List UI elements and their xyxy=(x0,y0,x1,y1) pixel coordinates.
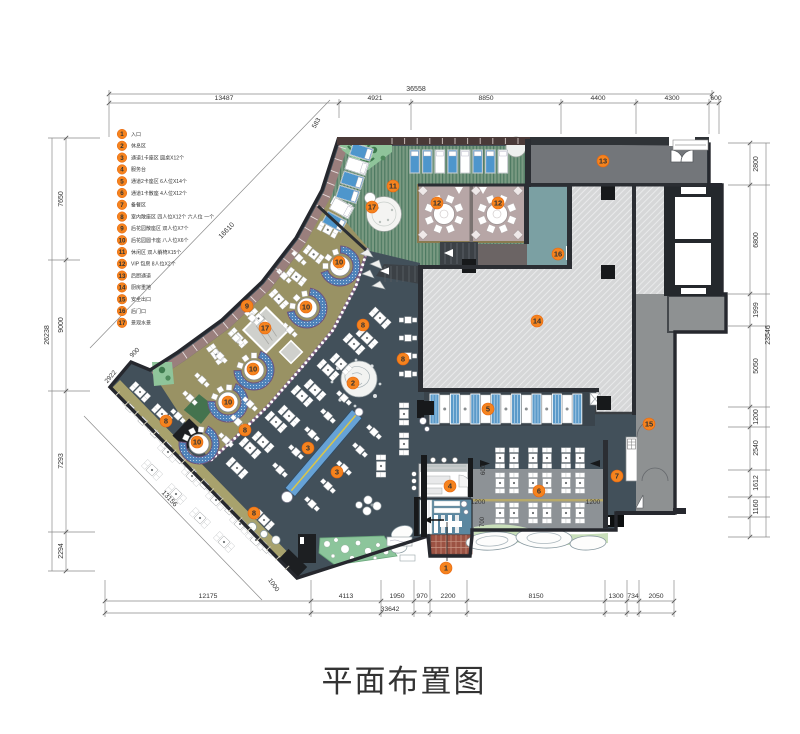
svg-text:通道2卡座区 6人位X14个: 通道2卡座区 6人位X14个 xyxy=(131,178,187,185)
svg-text:10: 10 xyxy=(193,438,201,447)
svg-text:2200: 2200 xyxy=(440,593,455,600)
svg-text:后厨通道: 后厨通道 xyxy=(131,272,151,279)
svg-text:1: 1 xyxy=(120,131,124,138)
svg-text:休闲区 双人躺椅X15个: 休闲区 双人躺椅X15个 xyxy=(131,249,181,256)
svg-text:600: 600 xyxy=(481,464,487,475)
svg-text:1300: 1300 xyxy=(608,593,623,600)
svg-text:平面布置图: 平面布置图 xyxy=(322,664,487,699)
svg-text:6800: 6800 xyxy=(753,232,760,248)
svg-text:通道1卡散座 4人位X12个: 通道1卡散座 4人位X12个 xyxy=(131,190,187,197)
svg-text:16: 16 xyxy=(554,250,562,259)
svg-text:15: 15 xyxy=(119,296,126,303)
svg-text:厨房重地: 厨房重地 xyxy=(131,284,151,291)
svg-text:2800: 2800 xyxy=(753,156,760,172)
svg-text:8150: 8150 xyxy=(528,593,543,600)
svg-text:后花园圆卡座 八人位X6个: 后花园圆卡座 八人位X6个 xyxy=(131,237,189,244)
svg-text:1999: 1999 xyxy=(753,302,760,318)
svg-text:9000: 9000 xyxy=(58,317,65,333)
svg-text:1160: 1160 xyxy=(753,499,760,514)
svg-text:970: 970 xyxy=(416,593,428,600)
svg-text:33642: 33642 xyxy=(381,606,400,613)
svg-text:4400: 4400 xyxy=(590,95,605,102)
svg-text:1200: 1200 xyxy=(753,409,760,425)
svg-text:3: 3 xyxy=(335,468,339,477)
svg-text:1: 1 xyxy=(444,564,448,573)
svg-text:17: 17 xyxy=(119,320,126,327)
svg-text:2: 2 xyxy=(120,143,124,150)
svg-text:4921: 4921 xyxy=(367,95,382,102)
svg-text:7: 7 xyxy=(120,202,124,209)
svg-text:5: 5 xyxy=(120,178,124,185)
svg-text:4300: 4300 xyxy=(664,95,679,102)
svg-text:入口: 入口 xyxy=(131,132,141,138)
svg-text:8: 8 xyxy=(252,509,256,518)
svg-text:600: 600 xyxy=(710,95,722,102)
svg-text:2540: 2540 xyxy=(753,440,760,456)
svg-text:1612: 1612 xyxy=(753,475,760,491)
svg-text:VIP 包房 8人位X2个: VIP 包房 8人位X2个 xyxy=(131,261,176,268)
svg-text:17: 17 xyxy=(261,324,269,333)
svg-text:8: 8 xyxy=(401,355,405,364)
svg-text:4: 4 xyxy=(120,167,124,174)
svg-text:12175: 12175 xyxy=(199,593,218,600)
svg-text:12: 12 xyxy=(494,199,502,208)
svg-text:8850: 8850 xyxy=(478,95,493,102)
svg-text:14: 14 xyxy=(533,317,542,326)
svg-text:10: 10 xyxy=(249,365,257,374)
svg-text:安全出口: 安全出口 xyxy=(131,296,151,303)
svg-text:11: 11 xyxy=(119,249,126,256)
svg-text:10: 10 xyxy=(119,237,126,244)
svg-text:7293: 7293 xyxy=(58,453,65,469)
svg-text:734: 734 xyxy=(627,593,639,600)
svg-text:16: 16 xyxy=(119,308,126,315)
svg-text:14: 14 xyxy=(119,285,126,292)
svg-text:9: 9 xyxy=(245,302,249,311)
svg-text:17: 17 xyxy=(368,203,376,212)
svg-text:7650: 7650 xyxy=(58,191,65,207)
svg-text:8: 8 xyxy=(243,426,247,435)
svg-text:后花园散座区 双人位X7个: 后花园散座区 双人位X7个 xyxy=(131,225,189,232)
svg-text:36558: 36558 xyxy=(406,86,426,93)
svg-text:景观水景: 景观水景 xyxy=(131,320,151,327)
svg-text:休息区: 休息区 xyxy=(131,143,146,150)
svg-text:5050: 5050 xyxy=(753,358,760,374)
svg-text:1200: 1200 xyxy=(471,499,486,506)
svg-text:室内散座区 四人位X12个 六人位 一个: 室内散座区 四人位X12个 六人位 一个 xyxy=(131,213,214,220)
svg-text:10: 10 xyxy=(224,398,232,407)
svg-text:23546: 23546 xyxy=(765,325,772,345)
svg-text:6: 6 xyxy=(120,190,124,197)
svg-text:10: 10 xyxy=(335,258,343,267)
svg-text:8: 8 xyxy=(361,321,365,330)
svg-text:后门口: 后门口 xyxy=(131,308,146,315)
svg-text:服务台: 服务台 xyxy=(131,166,146,173)
svg-text:2294: 2294 xyxy=(58,543,65,559)
svg-text:13: 13 xyxy=(599,157,607,166)
svg-text:8: 8 xyxy=(120,214,124,221)
svg-text:13: 13 xyxy=(119,273,126,280)
svg-text:26238: 26238 xyxy=(44,325,51,345)
svg-text:12: 12 xyxy=(433,199,441,208)
svg-text:1200: 1200 xyxy=(586,499,601,506)
svg-text:备餐区: 备餐区 xyxy=(131,202,146,209)
svg-text:12: 12 xyxy=(119,261,126,268)
svg-text:3: 3 xyxy=(306,444,310,453)
svg-text:通道1卡座区 圆桌X12个: 通道1卡座区 圆桌X12个 xyxy=(131,154,184,161)
svg-text:11: 11 xyxy=(389,182,397,191)
svg-text:9: 9 xyxy=(120,226,124,233)
svg-text:13487: 13487 xyxy=(215,95,234,102)
svg-text:2: 2 xyxy=(351,379,355,388)
svg-text:3: 3 xyxy=(120,155,124,162)
svg-text:15: 15 xyxy=(645,420,653,429)
svg-text:700: 700 xyxy=(480,516,486,527)
svg-text:10: 10 xyxy=(302,303,310,312)
svg-text:2050: 2050 xyxy=(648,593,663,600)
svg-text:8: 8 xyxy=(164,417,168,426)
svg-text:7: 7 xyxy=(615,472,619,481)
svg-text:1950: 1950 xyxy=(389,593,404,600)
svg-text:6: 6 xyxy=(537,487,541,496)
svg-text:4113: 4113 xyxy=(339,593,354,600)
svg-text:5: 5 xyxy=(486,405,490,414)
